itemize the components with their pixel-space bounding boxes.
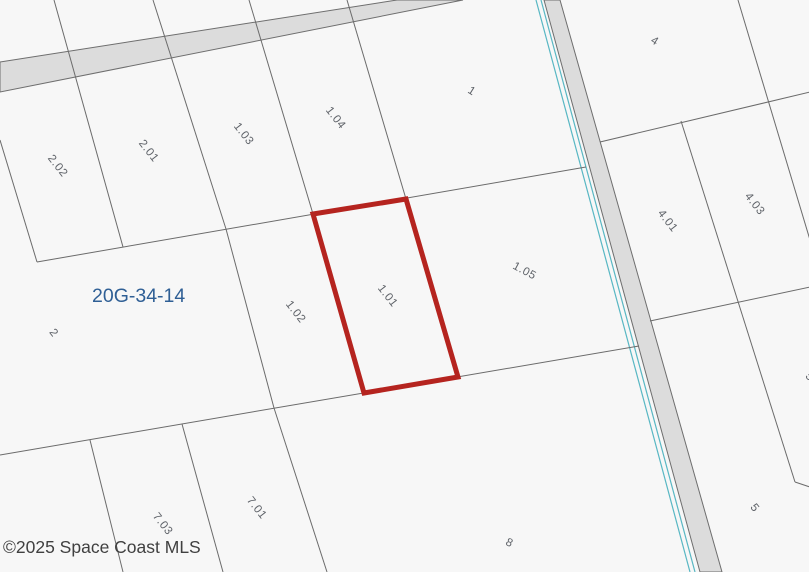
parcel-label-1-05: 1.05 bbox=[511, 260, 539, 282]
parcel-label-8: 8 bbox=[504, 536, 515, 550]
parcel-label-1: 1 bbox=[465, 85, 477, 99]
parcel-line bbox=[54, 0, 123, 247]
parcel-line bbox=[681, 121, 795, 482]
road-right bbox=[544, 0, 722, 572]
parcel-label-edge-partial: 5 bbox=[802, 371, 809, 384]
parcel-line bbox=[795, 482, 809, 487]
parcel-label-1-02: 1.02 bbox=[283, 299, 308, 326]
road-top-left bbox=[0, 0, 463, 92]
parcel-label-7-01: 7.01 bbox=[244, 495, 269, 522]
parcel-line bbox=[274, 408, 327, 572]
parcel-label-4-01: 4.01 bbox=[655, 208, 680, 235]
parcel-label-2-01: 2.01 bbox=[136, 138, 161, 165]
parcel-label-5: 5 bbox=[747, 502, 761, 515]
parcel-label-1-04: 1.04 bbox=[323, 105, 348, 132]
copyright-watermark: ©2025 Space Coast MLS bbox=[3, 537, 201, 557]
waterline-outer bbox=[536, 0, 690, 572]
section-township-range-label: 20G-34-14 bbox=[92, 285, 185, 307]
map-canvas[interactable]: 2.02 2.01 1.03 1.04 1 4 2 1.02 1.01 1.05… bbox=[0, 0, 809, 572]
parcel-label-1-01: 1.01 bbox=[375, 283, 400, 310]
parcel-label-4: 4 bbox=[648, 35, 660, 49]
parcel-line bbox=[347, 0, 406, 199]
waterline-inner bbox=[541, 0, 695, 572]
parcel-map-view: 2.02 2.01 1.03 1.04 1 4 2 1.02 1.01 1.05… bbox=[0, 0, 809, 572]
parcel-line bbox=[0, 140, 37, 262]
parcel-line bbox=[650, 287, 809, 321]
parcel-line bbox=[0, 346, 639, 455]
parcel-label-1-03: 1.03 bbox=[231, 121, 256, 148]
parcel-label-7-03: 7.03 bbox=[150, 511, 175, 538]
parcel-line bbox=[226, 229, 274, 408]
parcel-label-4-03: 4.03 bbox=[742, 191, 767, 218]
parcel-label-2-02: 2.02 bbox=[45, 153, 70, 180]
parcel-line bbox=[600, 92, 809, 142]
parcel-label-2: 2 bbox=[46, 327, 60, 340]
